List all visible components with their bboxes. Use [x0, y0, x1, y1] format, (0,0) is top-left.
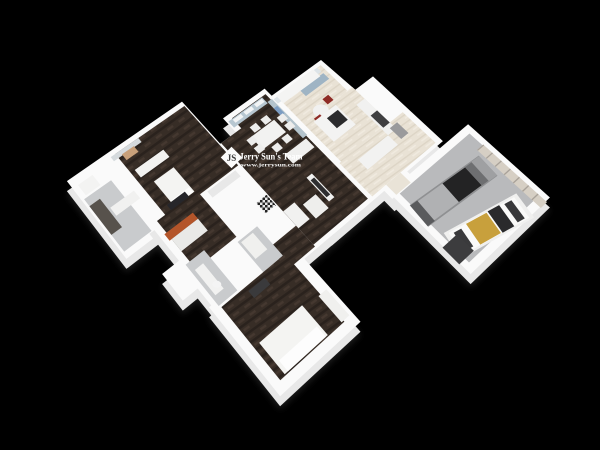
svg-text:JS: JS — [227, 153, 237, 163]
svg-text:Jerry Sun's Team: Jerry Sun's Team — [240, 152, 303, 163]
svg-text:www.jerrysun.com: www.jerrysun.com — [241, 163, 301, 169]
